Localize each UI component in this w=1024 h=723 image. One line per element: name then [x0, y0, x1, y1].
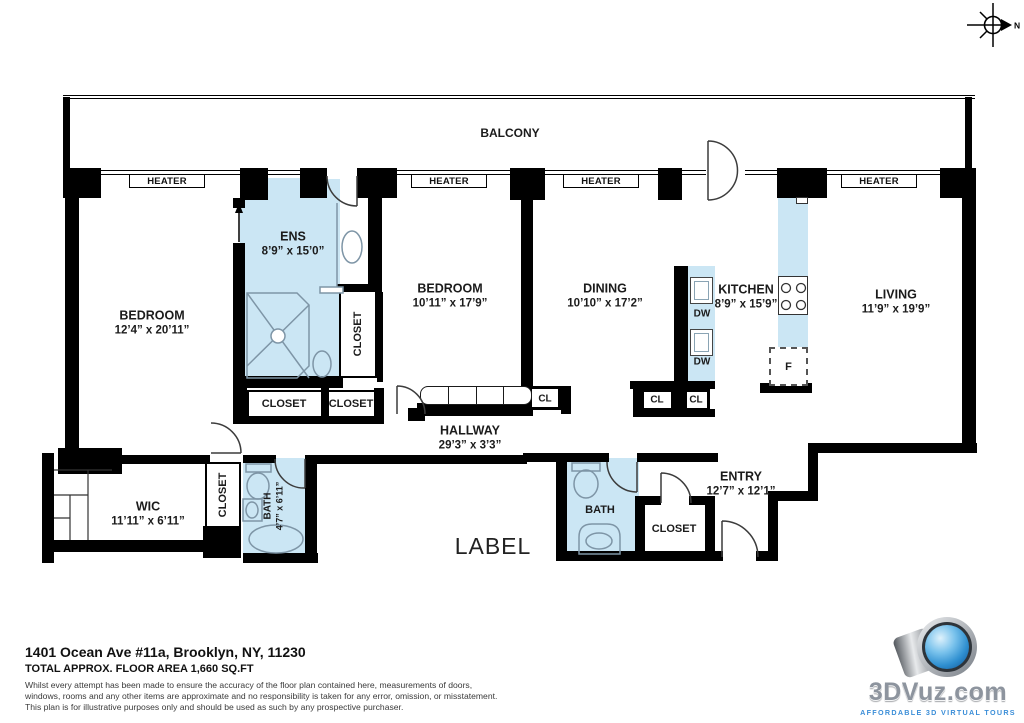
wall-segment [240, 168, 268, 200]
dishwasher-icon [690, 277, 713, 304]
room-label-wic: WIC 11’11” x 6’11” [111, 498, 185, 529]
fixtures-overlay: N [0, 0, 1024, 723]
room-label-balcony: BALCONY [480, 126, 539, 142]
wall-segment [561, 386, 571, 414]
compass-north-label: N [1014, 21, 1020, 31]
wall-segment [635, 496, 661, 505]
window [268, 170, 300, 175]
wall-segment [65, 198, 79, 460]
wall-segment [635, 551, 715, 561]
wall-segment [233, 376, 343, 388]
wall-segment [674, 266, 688, 390]
wall-segment [777, 168, 827, 198]
wall-segment [203, 526, 241, 558]
heater-label: HEATER [147, 176, 187, 187]
dishwasher-inner [694, 333, 709, 352]
room-label-ensuite: ENS 8’9” x 15’0” [262, 228, 325, 259]
wall-segment [305, 455, 527, 464]
closet-panel [477, 387, 505, 404]
closet-label: CLOSET [216, 473, 230, 518]
wall-segment [368, 198, 382, 293]
wall-segment [756, 551, 772, 561]
closet-panel [421, 387, 449, 404]
wall-segment [120, 455, 210, 463]
stove-icon [778, 276, 808, 315]
room-label-living: LIVING 11’9” x 19’9” [862, 286, 930, 317]
entry-door-swing [722, 521, 758, 557]
dishwasher-inner [694, 281, 709, 300]
disclaimer-line: windows, rooms and any other items are a… [25, 691, 497, 702]
fridge-box: F [769, 347, 808, 386]
wall-segment [58, 448, 122, 474]
dishwasher-label: DW [694, 356, 711, 369]
wall-segment [300, 168, 327, 198]
wall-segment [556, 453, 567, 560]
compass-cross [967, 3, 1004, 47]
logo-brand: 3DVuz [869, 678, 947, 706]
dishwasher-icon [690, 329, 713, 356]
room-label-dining: DINING 10’10” x 17’2” [567, 280, 642, 311]
heater-label: HEATER [859, 176, 899, 187]
vendor-logo: 3DVuz.com AFFORDABLE 3D VIRTUAL TOURS [860, 616, 1016, 717]
entry-closet-door-swing [661, 473, 691, 503]
room-label-bath-1: BATH 4’7” x 6’11” [262, 482, 287, 531]
wall-segment [233, 243, 245, 383]
wall-segment [377, 292, 383, 382]
wall-segment [965, 97, 972, 170]
wall-segment [357, 168, 397, 198]
wall-segment [521, 198, 533, 390]
closet-label: CLOSET [329, 397, 374, 411]
wall-segment [233, 198, 245, 208]
closet-panel [449, 387, 477, 404]
camera-lens-icon [860, 616, 1016, 680]
wall-segment [556, 551, 646, 561]
wall-segment [940, 168, 976, 198]
heater-box: HEATER [129, 174, 205, 188]
closet-label: CLOSET [652, 522, 697, 536]
compass-icon: N [967, 3, 1020, 47]
wall-segment [962, 198, 976, 453]
room-label-bedroom-2: BEDROOM 10’11” x 17’9” [413, 280, 488, 311]
wall-segment [305, 455, 317, 563]
heater-box: HEATER [411, 174, 487, 188]
wall-segment [63, 168, 101, 198]
closet-label-cl: CL [650, 394, 663, 407]
address-line: 1401 Ocean Ave #11a, Brooklyn, NY, 11230 [25, 644, 497, 660]
logo-wordmark: 3DVuz.com [860, 680, 1016, 705]
floor-plan-canvas: HEATER HEATER HEATER HEATER F [0, 0, 1024, 723]
wall-segment [637, 453, 718, 462]
wall-segment [523, 453, 609, 462]
door-opening [706, 167, 745, 179]
logo-tagline: AFFORDABLE 3D VIRTUAL TOURS [860, 708, 1016, 717]
disclaimer: Whilst every attempt has been made to en… [25, 680, 497, 714]
wall-segment [408, 408, 425, 421]
wall-segment [42, 540, 217, 552]
heater-box: HEATER [563, 174, 639, 188]
wall-segment [658, 168, 682, 200]
wic-shelving [54, 470, 112, 540]
sink-icon [342, 231, 362, 263]
bedroom1-door-swing [211, 423, 241, 453]
wall-segment [243, 553, 318, 563]
wall-segment [510, 168, 545, 200]
wall-segment [810, 443, 977, 453]
counter-sink-notch [796, 197, 808, 204]
compass-circle [985, 17, 1002, 34]
wall-segment [233, 388, 247, 418]
closet-label-cl: CL [689, 394, 702, 407]
sliding-closet-panels [420, 386, 532, 405]
dishwasher-label: DW [694, 308, 711, 321]
window [682, 170, 706, 175]
room-label-bedroom-1: BEDROOM 12’4” x 20’11” [115, 307, 190, 338]
room-label-kitchen: KITCHEN 8’9” x 15’9” [715, 281, 778, 312]
closet-label-cl: CL [538, 393, 551, 406]
room-label-bath-2: BATH [585, 503, 615, 517]
ensuite-floor [240, 178, 340, 378]
footer: 1401 Ocean Ave #11a, Brooklyn, NY, 11230… [25, 644, 497, 714]
closet-label: CLOSET [262, 397, 307, 411]
compass-north-arrow [1001, 19, 1012, 31]
wall-segment [63, 97, 70, 170]
room-label-entry: ENTRY 12’7” x 12’1” [706, 468, 775, 499]
heater-label: HEATER [429, 176, 469, 187]
placeholder-label: LABEL [455, 532, 532, 562]
logo-suffix: .com [947, 678, 1007, 706]
disclaimer-line: Whilst every attempt has been made to en… [25, 680, 497, 691]
window [745, 170, 777, 175]
lens-sphere [925, 625, 969, 669]
fridge-label: F [785, 361, 792, 373]
disclaimer-line: This plan is for illustrative purposes o… [25, 702, 497, 713]
room-label-hallway: HALLWAY 29’3” x 3’3” [439, 422, 502, 453]
door-opening [327, 167, 357, 179]
floor-area-line: TOTAL APPROX. FLOOR AREA 1,660 SQ.FT [25, 663, 497, 675]
closet-label: CLOSET [351, 312, 365, 357]
wall-segment [243, 455, 276, 463]
kitchen-counter [778, 198, 808, 348]
closet-panel [504, 387, 531, 404]
balcony-railing [63, 95, 975, 99]
heater-label: HEATER [581, 176, 621, 187]
heater-box: HEATER [841, 174, 917, 188]
